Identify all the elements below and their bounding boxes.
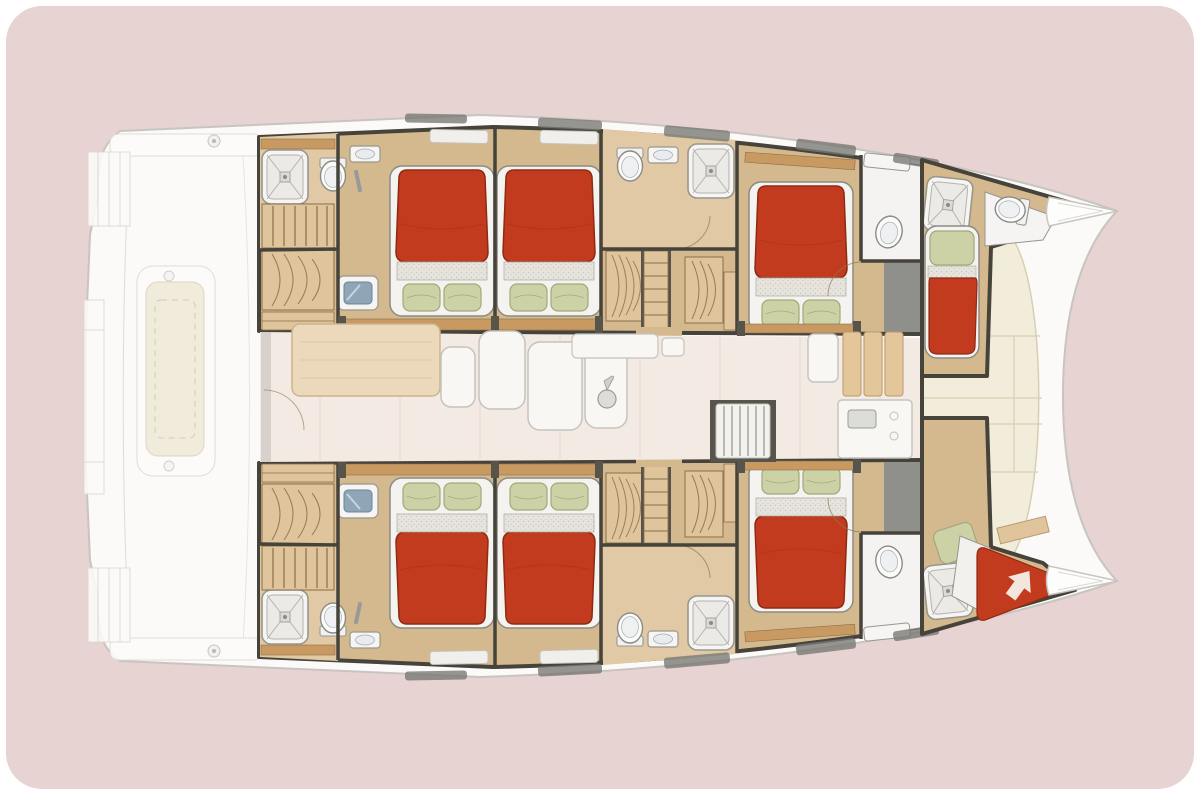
vanity-seat (338, 276, 378, 310)
companion-steps (641, 248, 671, 332)
port-hull-cabins (259, 113, 939, 336)
wardrobe (262, 250, 334, 310)
wardrobe (606, 251, 642, 321)
aft-beam-starboard (110, 638, 262, 660)
headboard-locker (540, 130, 598, 145)
washbasin (350, 146, 380, 162)
double-bed-mid (497, 166, 601, 316)
starboard-hull-cabins (259, 458, 939, 681)
toilet (320, 158, 346, 191)
wardrobe (685, 257, 723, 323)
companionway-stairs (710, 400, 776, 462)
bench-strip (743, 324, 859, 333)
table-hinge-aft (164, 271, 174, 281)
headboard-locker (430, 129, 488, 143)
side-shelf (724, 272, 737, 330)
sliding-door-shadow (261, 332, 271, 462)
galley-worktop (843, 332, 903, 396)
transom-steps-port (88, 152, 130, 226)
transom-steps-starboard (88, 568, 130, 642)
cockpit-table (146, 282, 204, 456)
bathroom-shelf (261, 139, 335, 149)
shower (688, 144, 734, 198)
fridge-island (808, 334, 838, 382)
deck-fitting-port (208, 135, 220, 147)
double-bed-aft (390, 166, 494, 316)
table-hinge-fwd (164, 461, 174, 471)
deck-fitting-starboard (208, 645, 220, 657)
single-bed-bow (925, 226, 979, 358)
galley-counter (838, 400, 912, 458)
saloon (260, 324, 921, 462)
aft-beam-port (110, 134, 262, 156)
console-shelf (572, 334, 684, 358)
shower (262, 150, 308, 204)
toilet (617, 148, 643, 181)
catamaran-floor-plan (0, 0, 1200, 795)
double-bed-forward (749, 182, 853, 332)
aft-platform (84, 300, 104, 494)
saloon-table (292, 324, 440, 396)
washbasin (648, 147, 678, 163)
screenshot (0, 0, 1200, 795)
technical-void (884, 262, 921, 332)
hull-steps (262, 204, 334, 248)
